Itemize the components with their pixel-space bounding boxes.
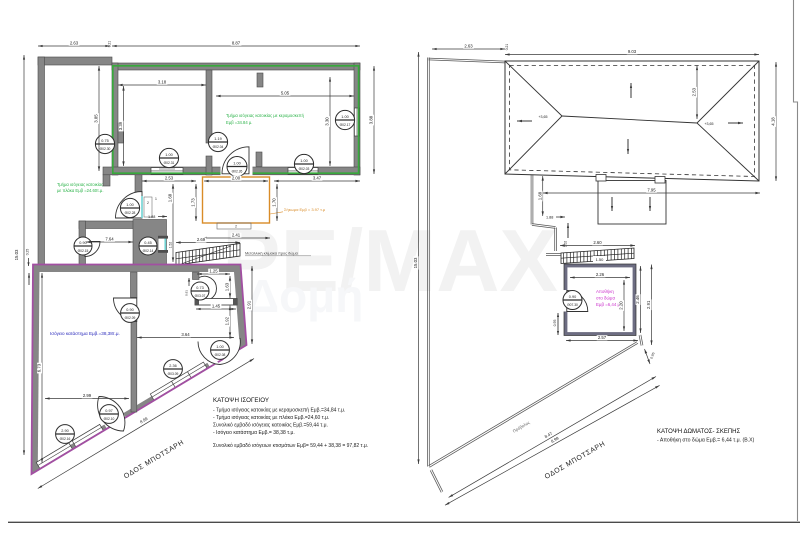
svg-text:- Αποθήκη στο δώμα Εμβ.= 6,44: - Αποθήκη στο δώμα Εμβ.= 6,44 τ.μ. (Β.Χ): [657, 437, 755, 444]
svg-text:Αποθήκη: Αποθήκη: [596, 289, 614, 294]
svg-text:Θ02.15: Θ02.15: [78, 249, 89, 253]
svg-text:Θ02.16: Θ02.16: [60, 437, 71, 441]
svg-text:1.50: 1.50: [596, 257, 605, 262]
svg-text:2.91: 2.91: [646, 300, 651, 309]
svg-text:1.92: 1.92: [225, 316, 230, 325]
svg-text:2.60: 2.60: [593, 240, 602, 245]
svg-text:2.20: 2.20: [619, 301, 624, 310]
svg-text:1.19: 1.19: [214, 137, 221, 141]
svg-text:Εμβ =6,44 μ.: Εμβ =6,44 μ.: [596, 302, 621, 307]
svg-text:Θ02.30: Θ02.30: [100, 147, 111, 151]
svg-text:Θ02.10: Θ02.10: [104, 417, 115, 421]
svg-text:2: 2: [235, 225, 237, 229]
svg-text:2.26: 2.26: [596, 272, 605, 277]
svg-text:0.25: 0.25: [26, 249, 30, 256]
svg-text:- Τμήμα ισόγειας κατοικίας με: - Τμήμα ισόγειας κατοικίας με κεραμοσκεπ…: [213, 407, 345, 414]
svg-text:1.00: 1.00: [341, 115, 348, 119]
svg-text:1.00: 1.00: [216, 345, 223, 349]
svg-text:1.88: 1.88: [546, 216, 553, 220]
svg-text:15.03: 15.03: [14, 249, 19, 260]
svg-text:6.73: 6.73: [37, 363, 42, 372]
svg-text:2.41: 2.41: [232, 232, 241, 237]
svg-text:2.91: 2.91: [247, 300, 252, 309]
svg-text:1.00: 1.00: [233, 161, 240, 165]
svg-text:1.52: 1.52: [169, 242, 173, 249]
svg-text:0.21: 0.21: [505, 44, 509, 51]
svg-text:Δομή: Δομή: [246, 270, 363, 322]
svg-text:Θ02.03: Θ02.03: [299, 167, 310, 171]
svg-text:1.00: 1.00: [126, 203, 133, 207]
svg-text:2: 2: [147, 201, 149, 205]
svg-text:1.68: 1.68: [168, 193, 173, 202]
svg-text:7.95: 7.95: [647, 187, 656, 192]
svg-text:1.70: 1.70: [272, 198, 277, 207]
svg-text:Θ02.31: Θ02.31: [164, 161, 175, 165]
svg-text:15.03: 15.03: [413, 257, 418, 268]
svg-text:0.90: 0.90: [79, 241, 86, 245]
svg-text:3.85: 3.85: [94, 114, 99, 123]
svg-text:2.63: 2.63: [70, 40, 79, 45]
svg-text:5.05: 5.05: [281, 90, 290, 95]
svg-text:+3,65: +3,65: [538, 115, 547, 119]
svg-text:1.00: 1.00: [165, 153, 172, 157]
svg-text:3.18: 3.18: [158, 79, 167, 84]
svg-text:1.25: 1.25: [209, 268, 218, 273]
svg-text:Θ02.09: Θ02.09: [125, 316, 136, 320]
svg-text:Μεταλλική κλίμακα προς δώμα: Μεταλλική κλίμακα προς δώμα: [245, 251, 299, 256]
svg-text:2.00: 2.00: [232, 175, 241, 180]
svg-text:Τμήμα ισόγειας κατοικίας: Τμήμα ισόγειας κατοικίας: [57, 182, 103, 187]
svg-text:2.90: 2.90: [61, 429, 68, 433]
svg-text:Θ03.09: Θ03.09: [168, 372, 179, 376]
svg-text:Θ02.08: Θ02.08: [215, 353, 226, 357]
svg-text:2.36: 2.36: [169, 364, 176, 368]
svg-text:- Ισόγειο κατάστημα Εμβ.= 38,3: - Ισόγειο κατάστημα Εμβ.= 38,38 τ.μ.: [213, 429, 295, 436]
svg-text:3.64: 3.64: [181, 332, 190, 337]
svg-text:1.73: 1.73: [191, 198, 196, 207]
svg-text:- Τμήμα ισόγειας κατοικίας με: - Τμήμα ισόγειας κατοικίας με πλάκα Εμβ.…: [213, 414, 329, 421]
svg-text:0.97: 0.97: [105, 409, 112, 413]
svg-text:Θ02.14: Θ02.14: [143, 249, 154, 253]
svg-text:2.69: 2.69: [197, 237, 206, 242]
svg-text:στο δώμα: στο δώμα: [596, 296, 615, 301]
svg-text:9.03: 9.03: [628, 49, 637, 54]
svg-text:1: 1: [155, 197, 157, 201]
svg-text:7.64: 7.64: [105, 236, 114, 241]
svg-text:0.90: 0.90: [126, 308, 133, 312]
svg-text:με πλάκα Εμβ =24.60τ.μ.: με πλάκα Εμβ =24.60τ.μ.: [57, 188, 104, 193]
svg-text:0.95: 0.95: [553, 320, 557, 327]
svg-text:4.18: 4.18: [771, 117, 776, 126]
svg-text:Συνολικό εμβαδό ισόγειων κτισμ: Συνολικό εμβαδό ισόγειων κτισμάτων Εμβ= …: [213, 442, 368, 449]
svg-text:Θ02.17: Θ02.17: [340, 123, 351, 127]
svg-text:Θ03.07: Θ03.07: [195, 294, 206, 298]
svg-text:2.53: 2.53: [692, 87, 697, 96]
svg-text:+3,65: +3,65: [704, 122, 713, 126]
svg-text:0.90: 0.90: [569, 295, 576, 299]
svg-text:Συνολικό εμβαδό ισόγειας κατοι: Συνολικό εμβαδό ισόγειας κατοικίας Εμβ.=…: [213, 422, 328, 429]
svg-text:ΚΑΤΟΨΗ ΙΣΟΓΕΙΟΥ: ΚΑΤΟΨΗ ΙΣΟΓΕΙΟΥ: [213, 397, 269, 404]
svg-text:3.39: 3.39: [118, 121, 123, 130]
svg-text:2.63: 2.63: [464, 43, 473, 48]
svg-text:8.87: 8.87: [232, 40, 241, 45]
svg-text:2.46: 2.46: [635, 295, 640, 304]
svg-text:1.88: 1.88: [148, 215, 155, 219]
svg-text:Ισόγειο κατάστημα Εμβ.=38,38τ.: Ισόγειο κατάστημα Εμβ.=38,38τ.μ.: [50, 330, 120, 336]
svg-text:2.57: 2.57: [598, 335, 607, 340]
svg-text:Εμβ =34.84 μ.: Εμβ =34.84 μ.: [226, 120, 252, 125]
svg-text:0.91: 0.91: [185, 290, 189, 296]
svg-text:1.45: 1.45: [212, 303, 221, 308]
svg-text:1.68: 1.68: [537, 191, 542, 200]
svg-text:Θ02.04: Θ02.04: [213, 145, 224, 149]
svg-text:0.45: 0.45: [144, 241, 151, 245]
svg-text:Θ02.28: Θ02.28: [125, 211, 136, 215]
svg-text:3.30: 3.30: [325, 117, 330, 126]
svg-text:2.99: 2.99: [83, 393, 92, 398]
svg-text:3.47: 3.47: [313, 175, 322, 180]
svg-text:Θ07.30: Θ07.30: [567, 303, 578, 307]
svg-text:0.75: 0.75: [101, 139, 108, 143]
svg-text:1.63: 1.63: [225, 282, 230, 291]
svg-text:3.88: 3.88: [369, 115, 374, 124]
svg-text:0.73: 0.73: [196, 286, 203, 290]
svg-text:Σήκωμα Εμβ = 3.97 τ.μ: Σήκωμα Εμβ = 3.97 τ.μ: [284, 207, 326, 212]
svg-text:2.53: 2.53: [165, 175, 174, 180]
svg-text:ΚΑΤΟΨΗ ΔΩΜΑΤΟΣ- ΣΚΕΠΗΣ: ΚΑΤΟΨΗ ΔΩΜΑΤΟΣ- ΣΚΕΠΗΣ: [657, 429, 740, 435]
svg-text:Θ02.26: Θ02.26: [232, 169, 243, 173]
svg-text:Τμήμα ισόγειας κατοικίας με κε: Τμήμα ισόγειας κατοικίας με κεραμοσκεπή: [226, 113, 305, 118]
svg-text:1.00: 1.00: [300, 159, 307, 163]
svg-text:0.21: 0.21: [108, 41, 112, 48]
